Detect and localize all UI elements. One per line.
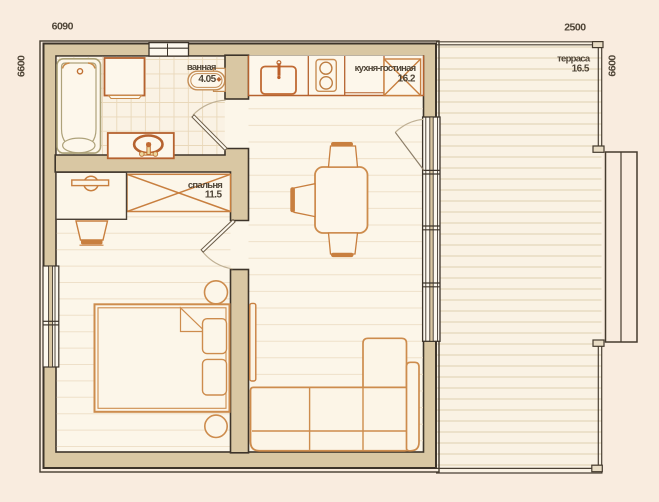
svg-text:2500: 2500: [564, 21, 586, 33]
svg-text:кухня-гостиная: кухня-гостиная: [355, 63, 416, 74]
svg-text:ванная: ванная: [187, 62, 216, 73]
svg-text:4.05: 4.05: [198, 74, 216, 85]
svg-text:6090: 6090: [52, 21, 74, 33]
svg-text:16.2: 16.2: [398, 74, 416, 85]
svg-text:16.5: 16.5: [572, 64, 590, 75]
svg-text:11.5: 11.5: [205, 190, 223, 201]
svg-text:6600: 6600: [16, 55, 28, 77]
svg-text:6600: 6600: [607, 55, 619, 77]
